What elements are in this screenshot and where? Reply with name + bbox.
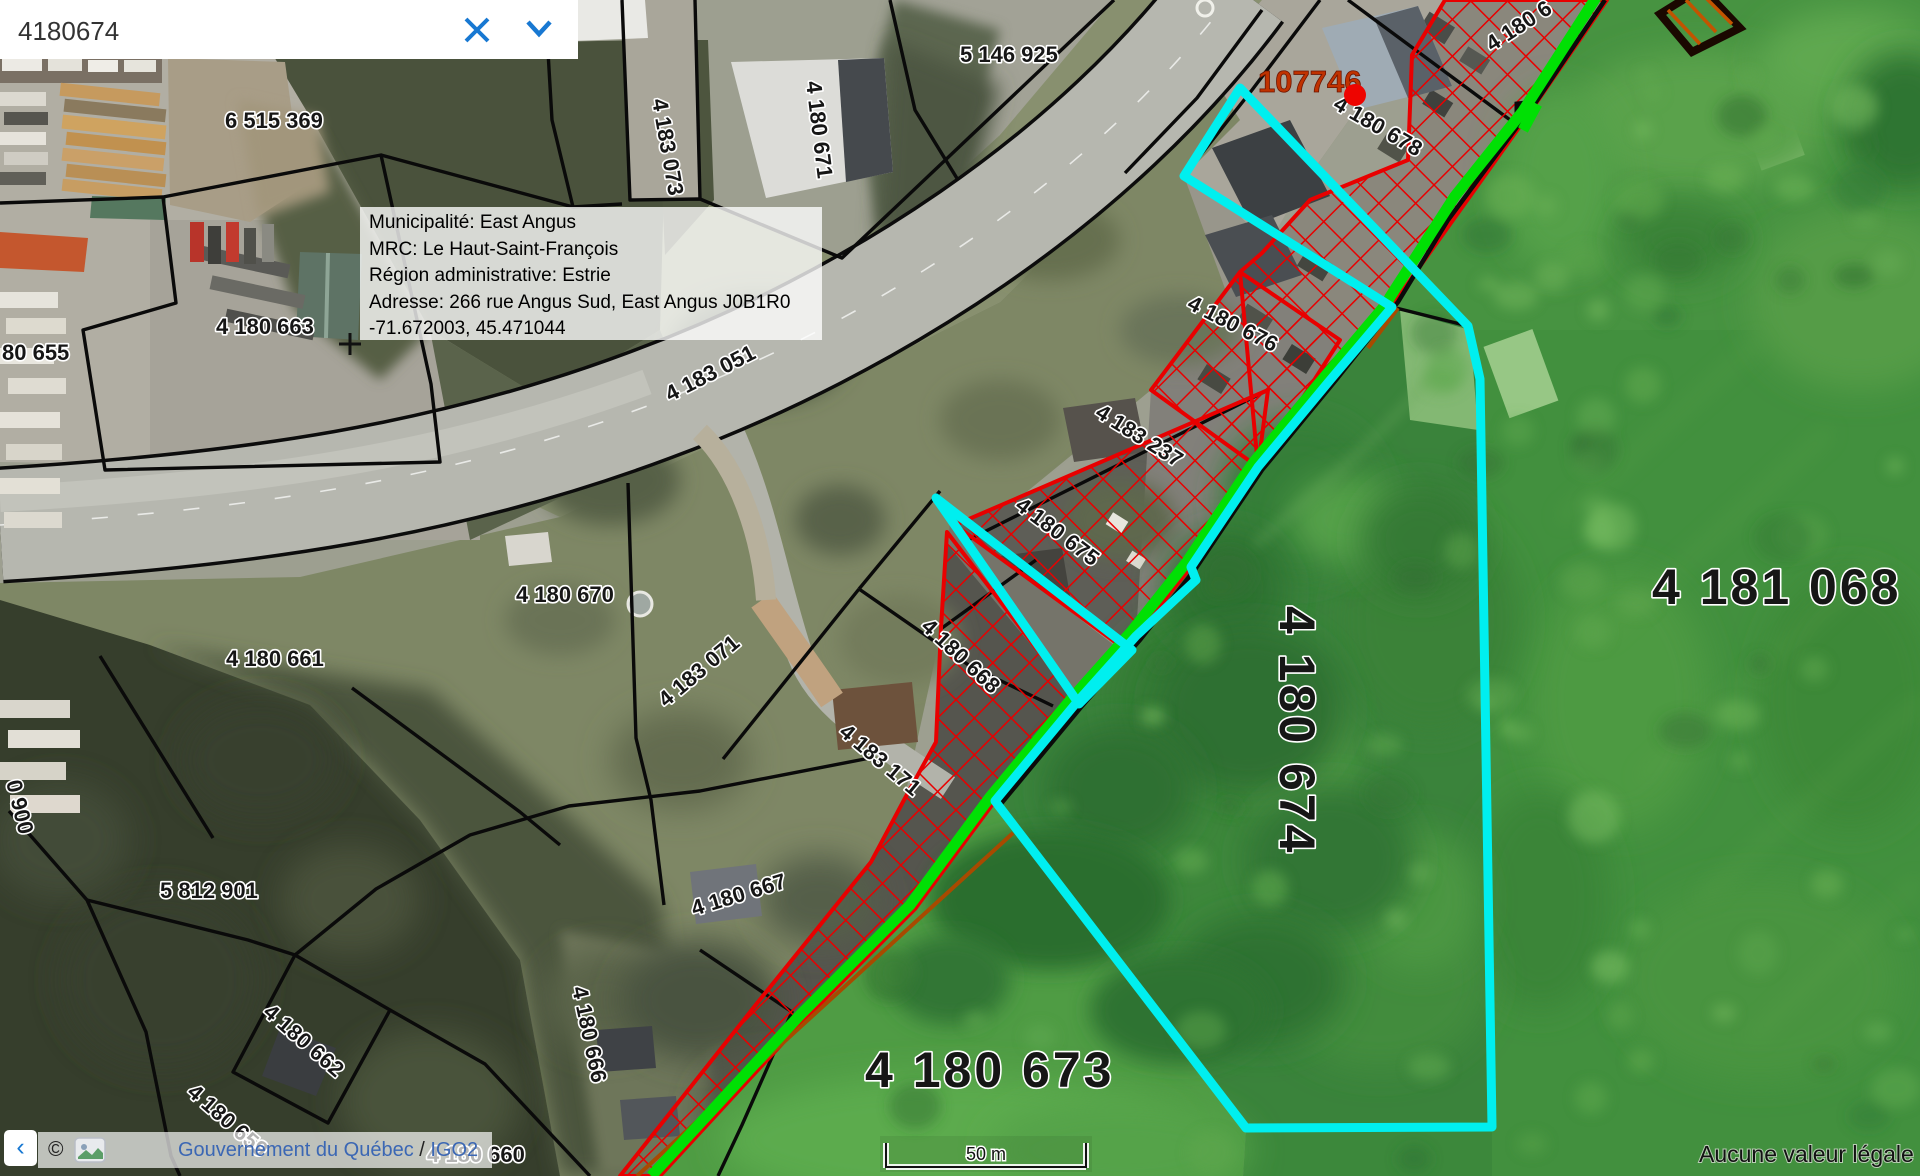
svg-text:5 812 901: 5 812 901 [160, 878, 258, 903]
svg-text:80 655: 80 655 [2, 340, 69, 365]
svg-text:Aucune valeur légale: Aucune valeur légale [1699, 1141, 1914, 1167]
svg-text:4 180 663: 4 180 663 [216, 314, 314, 339]
svg-text:4 180 673: 4 180 673 [865, 1042, 1114, 1098]
svg-text:50 m: 50 m [966, 1144, 1006, 1164]
svg-text:4 180 674: 4 180 674 [1269, 606, 1325, 855]
svg-text:5 146 925: 5 146 925 [960, 42, 1058, 67]
svg-text:4 181 068: 4 181 068 [1652, 559, 1901, 615]
svg-text:6 515 369: 6 515 369 [225, 108, 323, 133]
svg-text:4 180 661: 4 180 661 [226, 646, 324, 671]
svg-text:4 180 670: 4 180 670 [516, 582, 614, 607]
